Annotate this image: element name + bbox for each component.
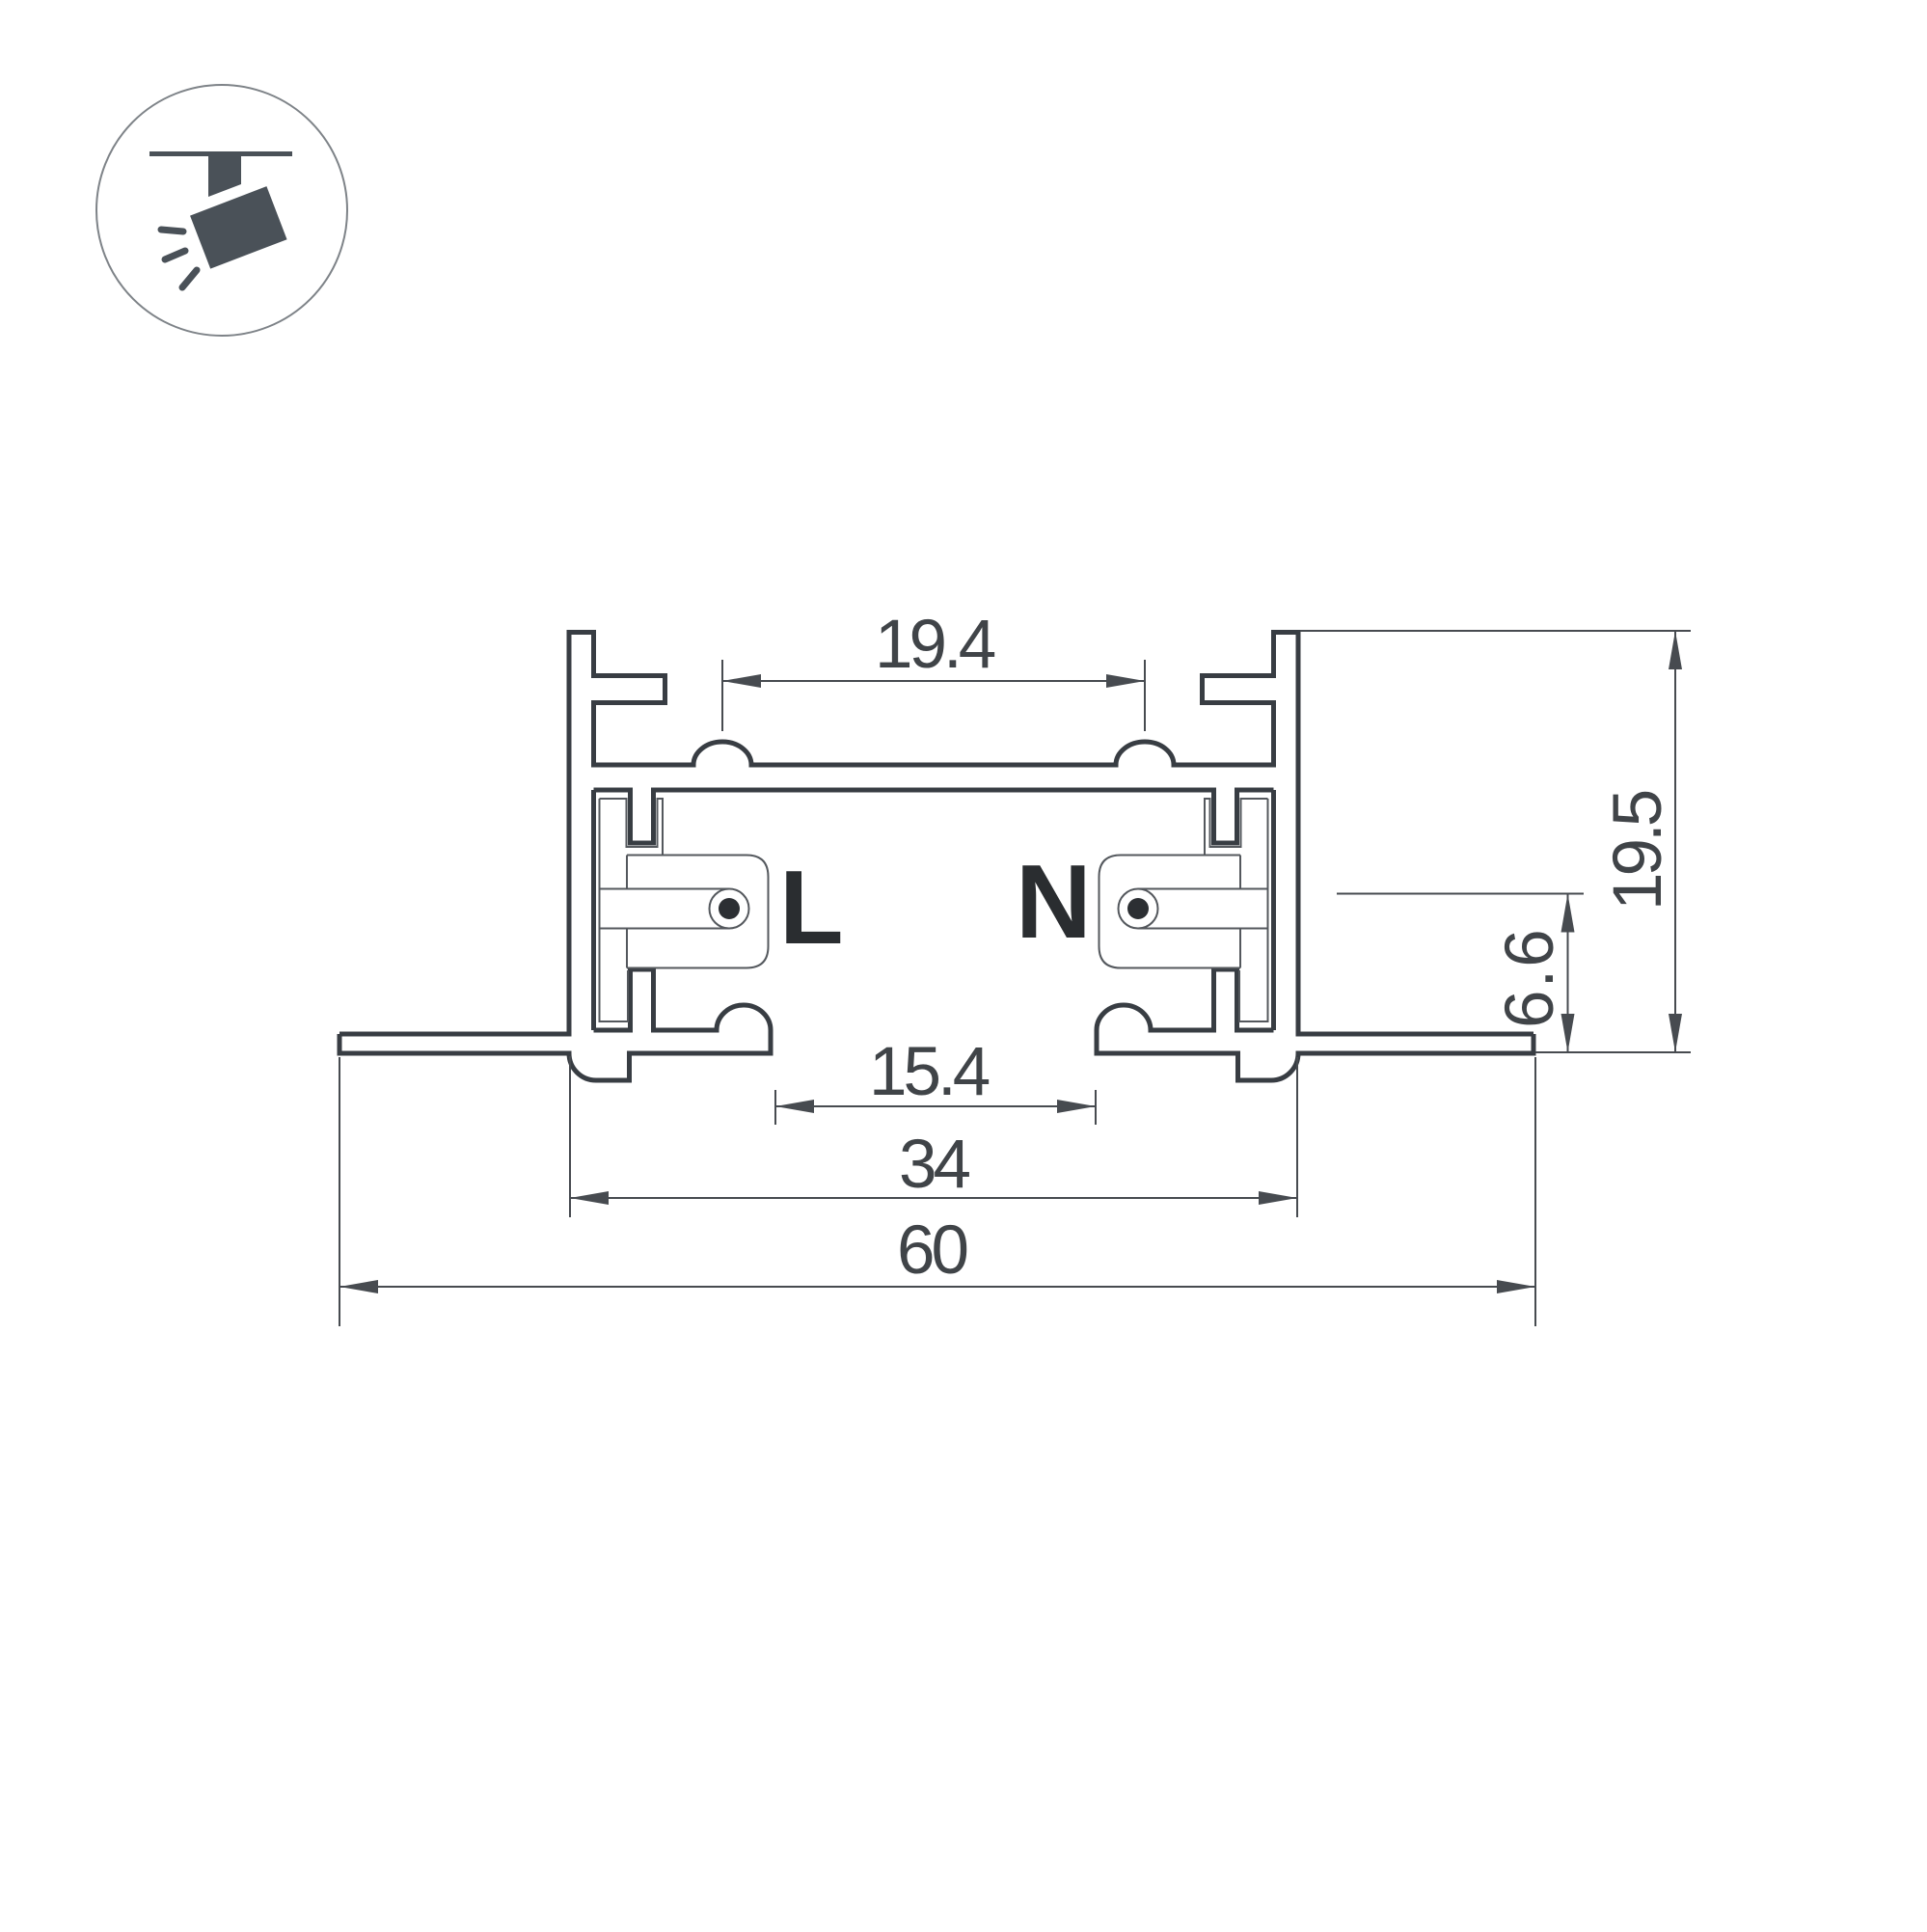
svg-text:6.6: 6.6 — [1492, 927, 1568, 1028]
svg-text:34: 34 — [899, 1127, 969, 1203]
svg-text:60: 60 — [897, 1212, 966, 1289]
svg-text:L: L — [779, 849, 844, 966]
svg-text:19.4: 19.4 — [875, 607, 995, 683]
svg-text:19.5: 19.5 — [1600, 791, 1676, 911]
svg-text:15.4: 15.4 — [869, 1034, 990, 1110]
svg-text:N: N — [1016, 843, 1092, 961]
